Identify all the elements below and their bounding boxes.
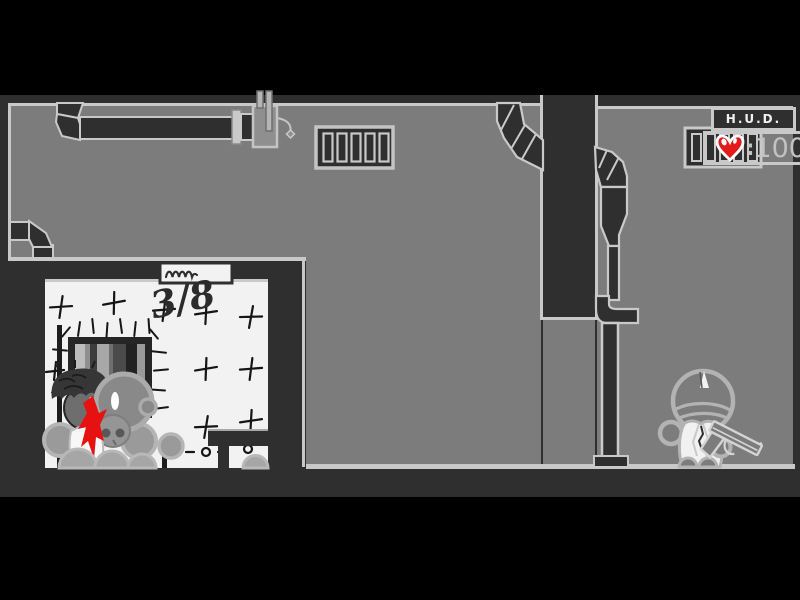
- pipe-base: [594, 456, 628, 467]
- hud-title: H.U.D.: [711, 107, 796, 131]
- skull-ring: [159, 434, 183, 458]
- big-skull-eye: [111, 392, 119, 410]
- duct-motor-box: [253, 106, 277, 147]
- health-heart-icon: [715, 134, 745, 162]
- big-skull-ear: [140, 399, 156, 415]
- duct-flange: [232, 110, 241, 144]
- health-separator: :: [746, 136, 754, 160]
- health-value: 100: [754, 135, 800, 162]
- central-column: [542, 95, 597, 319]
- hud-health-panel: : 100: [703, 131, 800, 165]
- wall-vent: [316, 127, 393, 168]
- game-scene: [0, 0, 800, 600]
- game-stage[interactable]: 3/8 H.U.D. : 100: [0, 0, 800, 600]
